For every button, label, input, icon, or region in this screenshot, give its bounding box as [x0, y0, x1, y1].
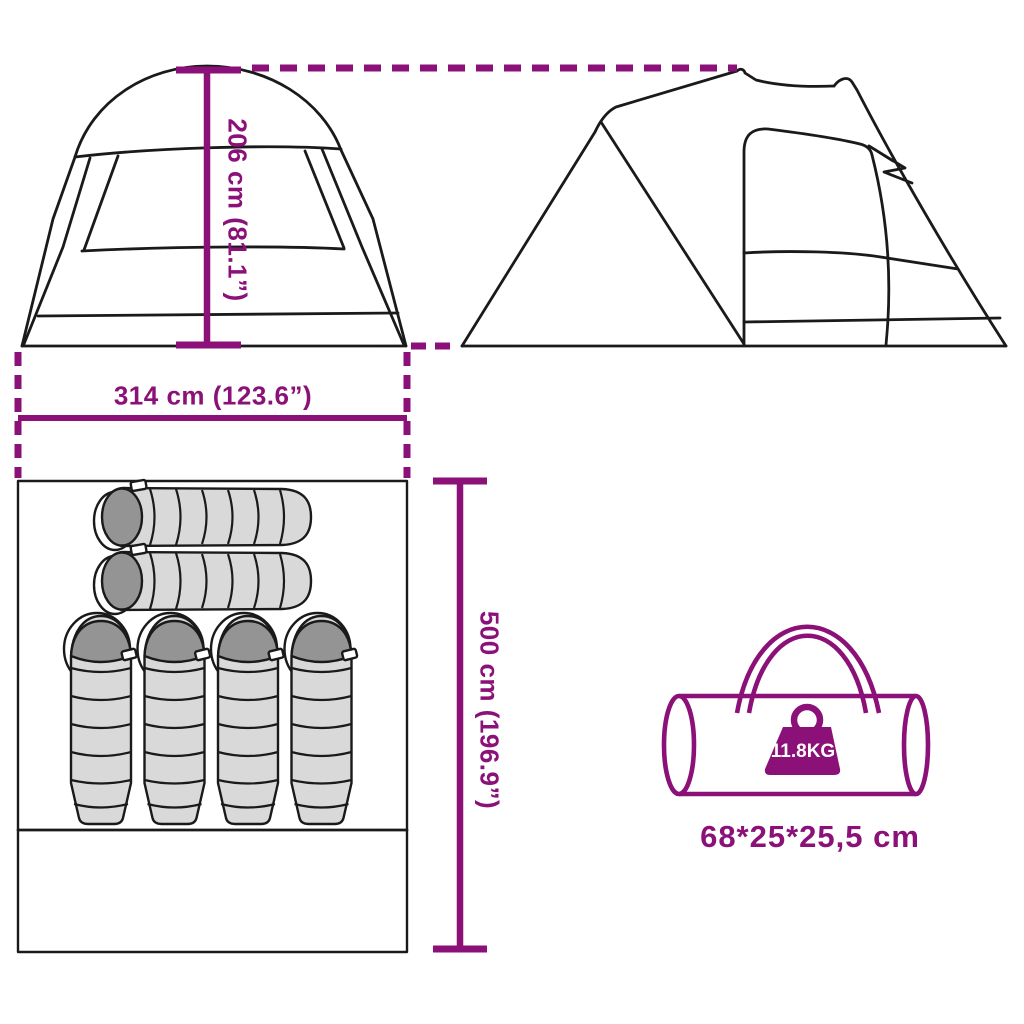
height-dimension-label: 206 cm (81.1”) [222, 118, 253, 301]
weight-label: 11.8KG [771, 741, 835, 763]
tent-front-view [22, 66, 406, 346]
tent-side-view [462, 69, 1006, 346]
sleeping-bag-vertical-3 [211, 613, 284, 824]
sleeping-bag-horizontal-2 [94, 544, 311, 614]
sleeping-bag-vertical-4 [285, 613, 358, 824]
width-dimension-line [18, 352, 407, 478]
sleeping-bag-horizontal-1 [94, 480, 311, 550]
width-dimension-label: 314 cm (123.6”) [114, 381, 312, 412]
carry-bag-size-label: 68*25*25,5 cm [700, 819, 920, 855]
diagram-artwork [0, 0, 1024, 1024]
sleeping-bag-vertical-1 [64, 613, 137, 824]
length-dimension-label: 500 cm (196.9”) [474, 611, 505, 809]
sleeping-bag-vertical-2 [138, 613, 211, 824]
product-dimension-diagram: 206 cm (81.1”) 314 cm (123.6”) 500 cm (1… [0, 0, 1024, 1024]
